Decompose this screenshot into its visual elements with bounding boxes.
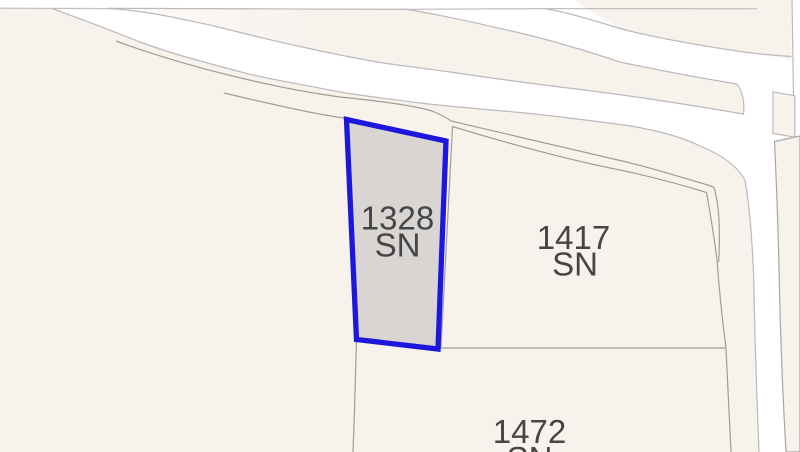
svg-text:SN: SN [507, 440, 553, 452]
svg-text:SN: SN [552, 246, 598, 283]
svg-text:SN: SN [375, 227, 421, 264]
